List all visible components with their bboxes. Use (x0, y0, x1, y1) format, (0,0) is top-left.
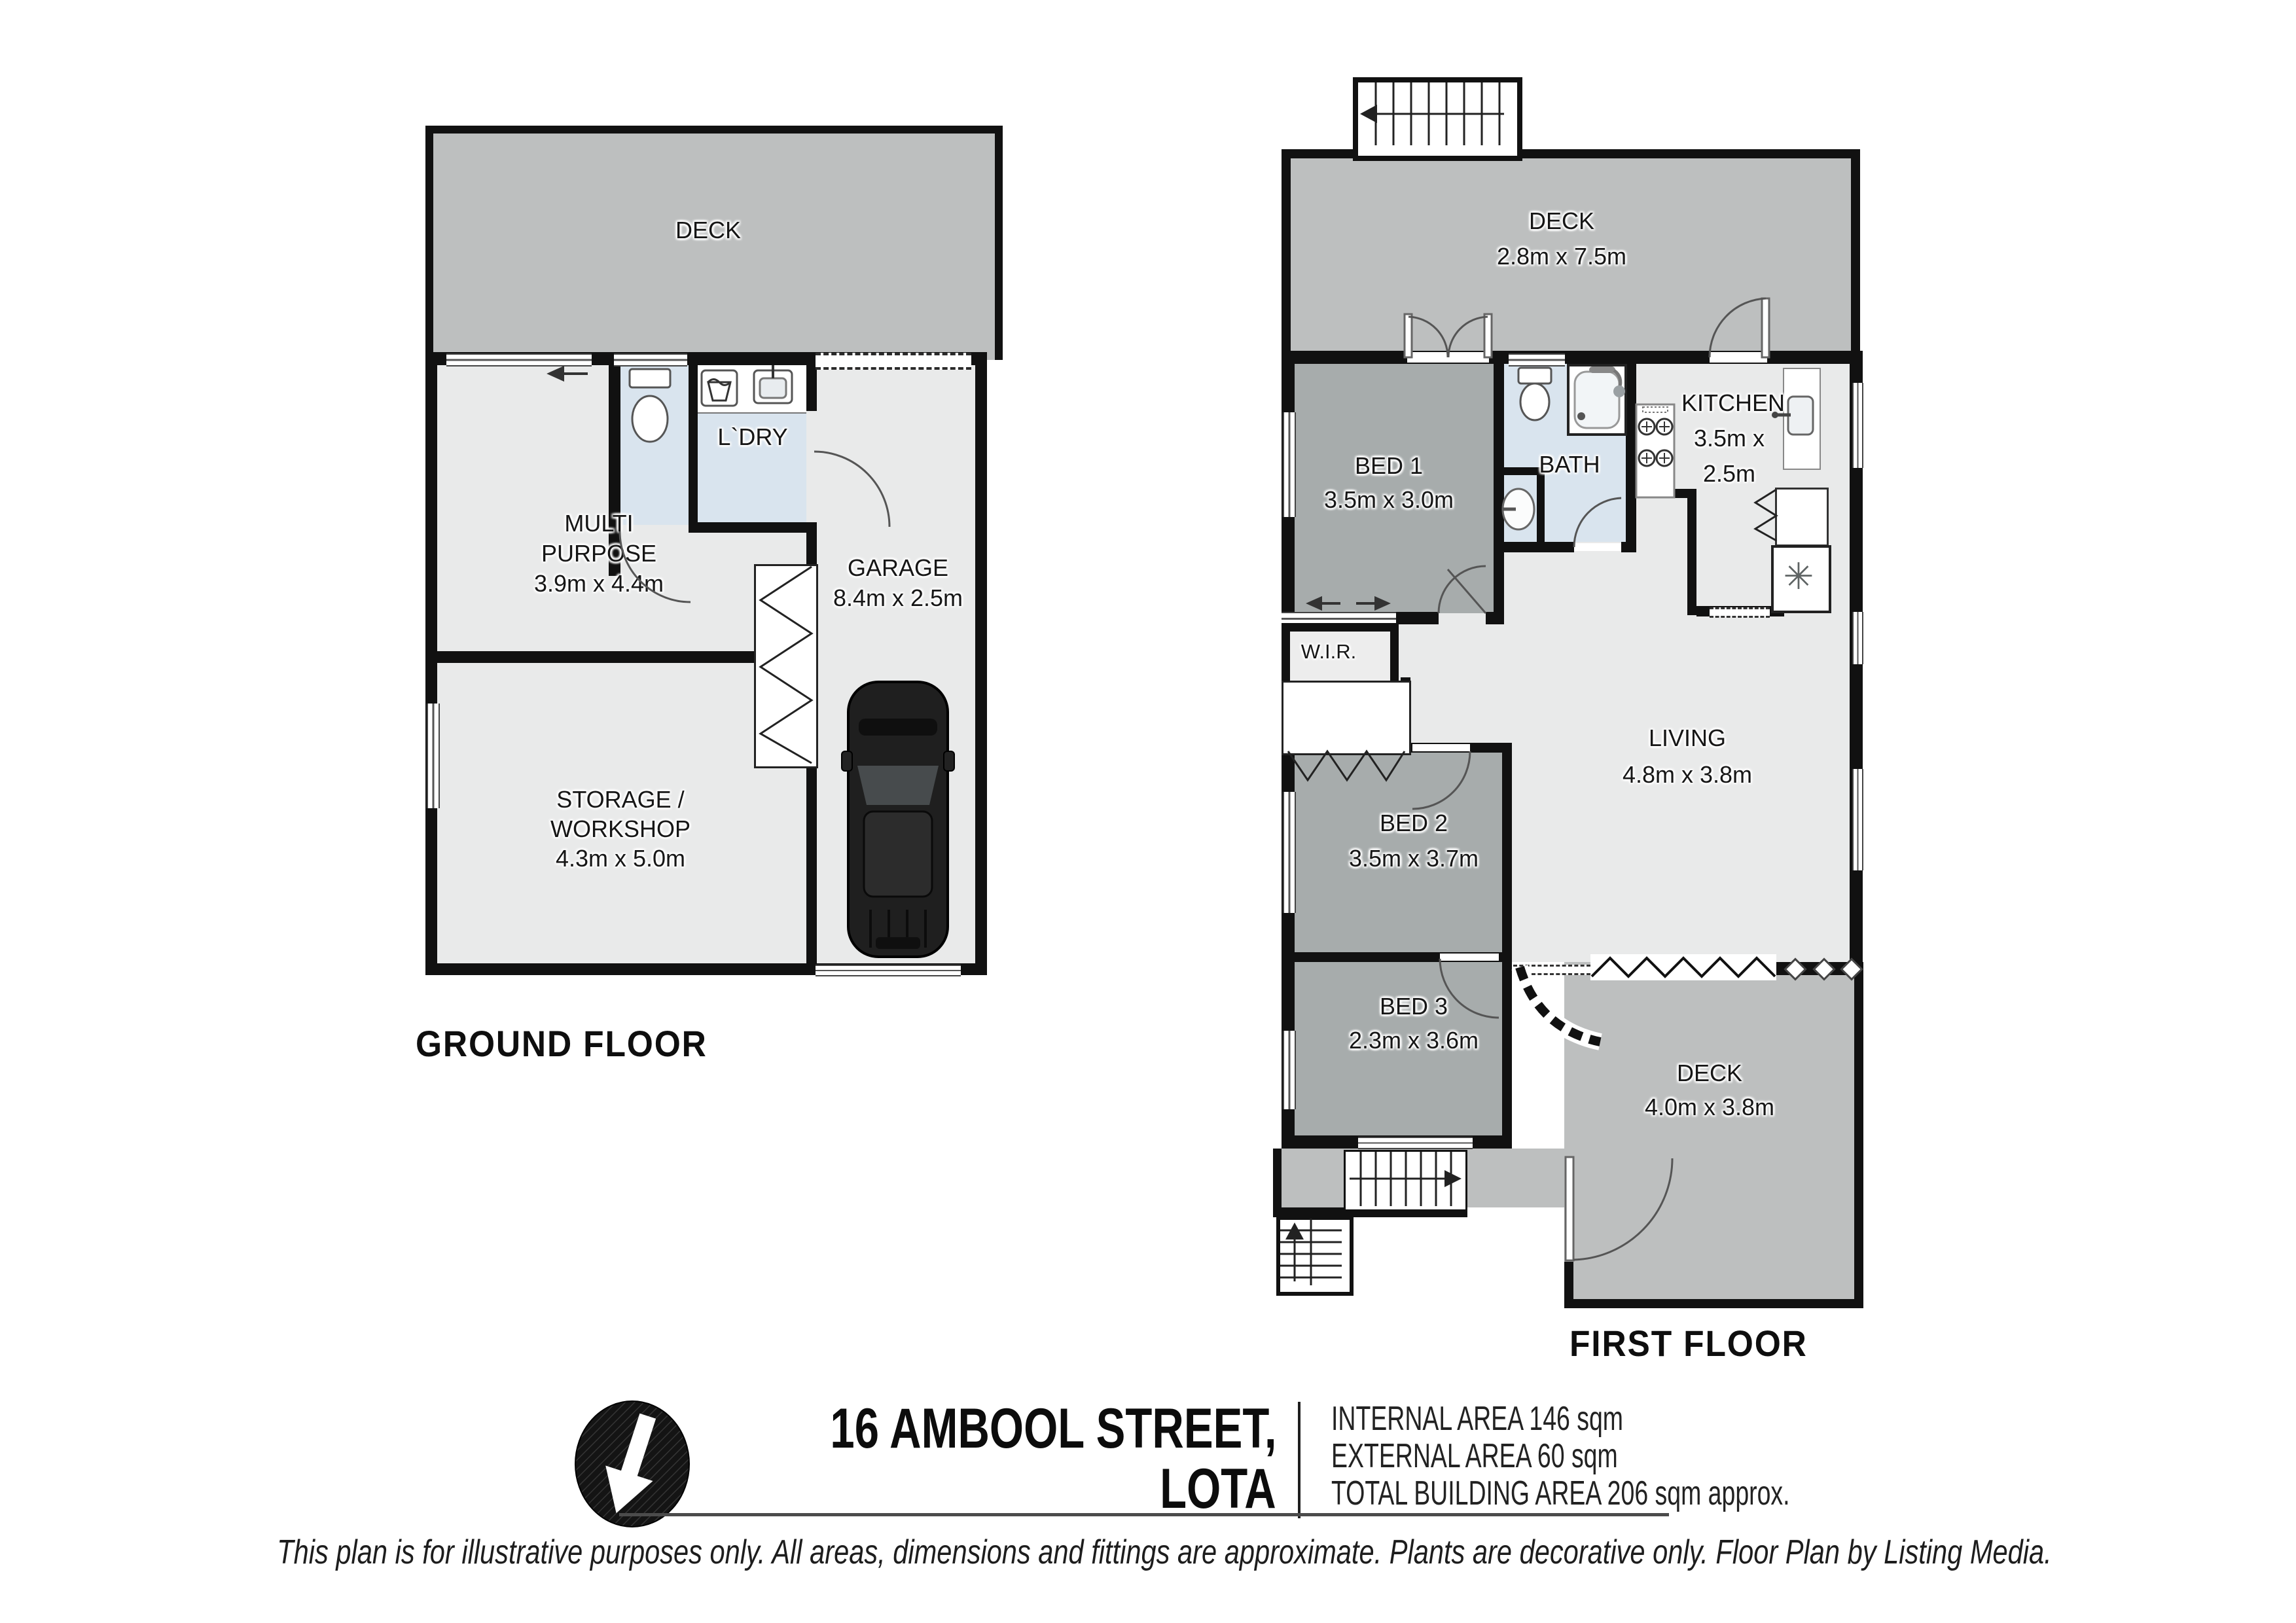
first-door-arcs (1408, 298, 1766, 1260)
stairs-mid-arrow (1444, 1170, 1462, 1187)
ground-door-arcs (620, 452, 889, 602)
bed1-robe-arrows (1309, 598, 1388, 609)
curved-bifold-door (1520, 967, 1600, 1042)
address-line-2: LOTA (1160, 1461, 1276, 1517)
stairs-top-treads (1371, 82, 1504, 145)
external-area: EXTERNAL AREA 60 sqm (1331, 1436, 1618, 1476)
stairs-top-arrow (1360, 105, 1377, 123)
washing-machine-icon (702, 370, 737, 406)
floorplan-page: { "ground_floor": { "floor_label": "GROU… (0, 0, 2296, 1623)
deck-plant-diamonds (1785, 959, 1861, 979)
ground-toilet-icon (630, 369, 670, 442)
bath-toilet-icon (1518, 368, 1551, 420)
internal-area: INTERNAL AREA 146 sqm (1331, 1399, 1623, 1438)
deck-door-leaves (1405, 298, 1769, 1260)
ground-entry-arrow-icon (550, 368, 588, 380)
disclaimer-text: This plan is for illustrative purposes o… (277, 1533, 2051, 1572)
kitchen-sink-icon (1772, 397, 1813, 435)
plan-detail-overlay (0, 0, 2296, 1623)
stove-icon (1636, 404, 1674, 497)
shower-icon (1568, 365, 1626, 435)
laundry-tub-icon (754, 365, 792, 403)
stairs-ext-treads (1280, 1219, 1342, 1285)
stairs-mid-treads (1350, 1152, 1452, 1206)
footer-divider (1298, 1402, 1300, 1518)
listing-media-logo (575, 1401, 689, 1527)
pantry-folding-doors (1755, 490, 1776, 541)
ground-folding-doors (761, 567, 812, 763)
address-line-1: 16 AMBOOL STREET, (830, 1400, 1276, 1457)
vanity-sink-icon (1503, 489, 1534, 529)
car-icon (842, 682, 954, 957)
total-area: TOTAL BUILDING AREA 206 sqm approx. (1331, 1474, 1790, 1513)
footer-rule (619, 1513, 1669, 1516)
living-accordion-door (1590, 954, 1776, 980)
wir-wardrobe-folding-doors (1288, 751, 1405, 780)
